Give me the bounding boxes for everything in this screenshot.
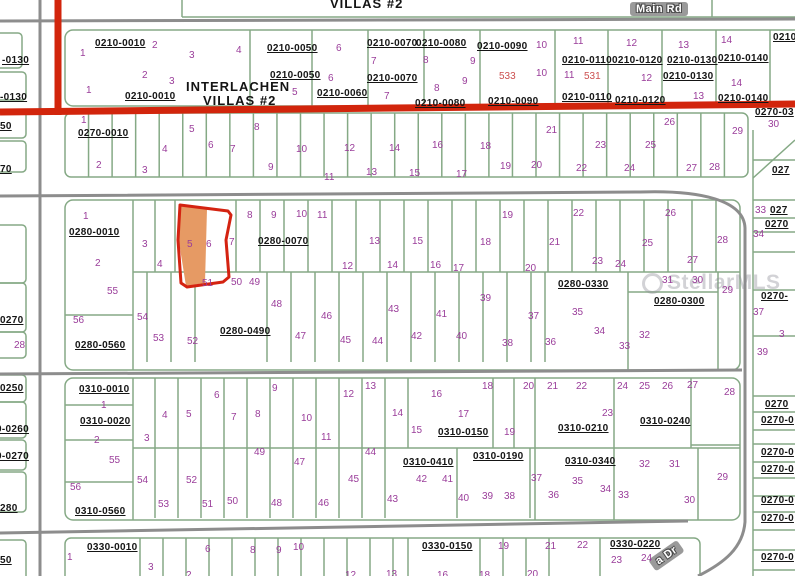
lot-number: 11 xyxy=(564,71,574,81)
subdivision-title-top: VILLAS #2 xyxy=(330,0,403,10)
lot-number: 1 xyxy=(101,401,107,411)
lot-number: 2 xyxy=(95,259,101,269)
lot-number: 4 xyxy=(162,145,168,155)
lot-number: 8 xyxy=(250,546,256,556)
lot-number: 10 xyxy=(301,414,312,424)
parcel-id-fragment: 0-0260 xyxy=(0,425,29,435)
lot-number: 34 xyxy=(594,327,605,337)
parcel-id-label: 0310-0340 xyxy=(565,457,616,467)
lot-number: 27 xyxy=(687,381,698,391)
lot-number: 32 xyxy=(639,460,650,470)
lot-number: 3 xyxy=(148,563,154,573)
lot-number: 39 xyxy=(480,294,491,304)
lot-number: 27 xyxy=(686,164,697,174)
lot-number: 55 xyxy=(109,456,120,466)
lot-number: 52 xyxy=(187,337,198,347)
lot-number: 11 xyxy=(317,211,327,221)
lot-number: 2 xyxy=(96,161,102,171)
lot-number: 5 xyxy=(189,125,195,135)
parcel-id-fragment: 027 xyxy=(770,206,788,216)
parcel-id-label: 0210-0070 xyxy=(367,39,418,49)
lot-number: 5 xyxy=(186,410,192,420)
lot-number: 28 xyxy=(717,236,728,246)
lot-number: 10 xyxy=(536,69,547,79)
lot-number: 30 xyxy=(768,120,779,130)
parcel-id-label: 0210-0120 xyxy=(612,56,663,66)
parcel-id-label: 0310-0010 xyxy=(79,385,130,395)
lot-number: 10 xyxy=(296,145,307,155)
lot-number: 1 xyxy=(81,116,87,126)
parcel-id-label: 0330-0010 xyxy=(87,543,138,553)
parcel-id-label: 0210-0060 xyxy=(317,89,368,99)
parcel-id-fragment: -0130 xyxy=(0,93,27,103)
lot-number: 8 xyxy=(423,56,429,66)
lot-number: 6 xyxy=(205,545,211,555)
parcel-id-label: 0310-0240 xyxy=(640,417,691,427)
lot-number: 40 xyxy=(458,494,469,504)
lot-number: 22 xyxy=(576,164,587,174)
lot-number: 40 xyxy=(456,332,467,342)
lot-number: 35 xyxy=(572,477,583,487)
lot-number: 36 xyxy=(545,338,556,348)
lot-number: 31 xyxy=(662,276,673,286)
lot-number: 23 xyxy=(602,409,613,419)
lot-number: 7 xyxy=(384,92,390,102)
lot-number: 9 xyxy=(276,546,282,556)
lot-number: 13 xyxy=(386,570,397,576)
lot-number: 22 xyxy=(573,209,584,219)
lot-number: 41 xyxy=(436,310,447,320)
highlighted-parcel-fill[interactable] xyxy=(179,206,207,286)
lot-number: 50 xyxy=(231,278,242,288)
parcel-id-fragment: 0270-0 xyxy=(761,416,794,426)
lot-number: 17 xyxy=(458,410,469,420)
lot-number: 13 xyxy=(366,168,377,178)
lot-number: 15 xyxy=(412,237,423,247)
parcel-id-label: 0210-0090 xyxy=(477,42,528,52)
lot-number: 4 xyxy=(162,411,168,421)
parcel-id-label: 0210-0130 xyxy=(663,72,714,82)
lot-number: 2 xyxy=(94,436,100,446)
parcel-id-label: 0310-0020 xyxy=(80,417,131,427)
parcel-id-label: 0210-0080 xyxy=(415,99,466,109)
parcel-id-fragment: 0270- xyxy=(761,292,788,302)
parcel-id-fragment: 50 xyxy=(0,556,12,566)
lot-number: 35 xyxy=(572,308,583,318)
parcel-id-fragment: 280 xyxy=(0,504,18,514)
lot-number: 1 xyxy=(67,553,73,563)
parcel-id-label: 0210-0140 xyxy=(718,54,769,64)
lot-number: 56 xyxy=(73,316,84,326)
lot-number: 21 xyxy=(546,126,557,136)
lot-number: 26 xyxy=(665,209,676,219)
lot-number: 28 xyxy=(709,163,720,173)
parcel-id-label: 0310-0560 xyxy=(75,507,126,517)
plat-map: VILLAS #2 INTERLACHEN VILLAS #2 Main Rd … xyxy=(0,0,795,576)
red-lot-number: 531 xyxy=(584,72,601,82)
lot-number: 8 xyxy=(247,211,253,221)
lot-number: 1 xyxy=(83,212,89,222)
lot-number: 33 xyxy=(618,491,629,501)
parcel-id-fragment: 70 xyxy=(0,165,12,175)
lot-number: 33 xyxy=(755,206,766,216)
lot-number: 16 xyxy=(431,390,442,400)
lot-number: 12 xyxy=(345,571,356,576)
parcel-id-fragment: 0250 xyxy=(0,384,23,394)
lot-number: 34 xyxy=(600,485,611,495)
lot-number: 42 xyxy=(411,332,422,342)
parcel-id-fragment: 0210 xyxy=(773,33,795,43)
lot-number: 3 xyxy=(142,166,148,176)
lot-number: 2 xyxy=(142,71,148,81)
lot-number: 24 xyxy=(624,164,635,174)
lot-number: 7 xyxy=(230,145,236,155)
lot-number: 20 xyxy=(523,382,534,392)
lot-number: 38 xyxy=(502,339,513,349)
parcel-id-label: 0210-0070 xyxy=(367,74,418,84)
parcel-id-fragment: 0270-0 xyxy=(761,553,794,563)
parcel-id-label: 0310-0190 xyxy=(473,452,524,462)
lot-number: 9 xyxy=(271,211,277,221)
parcel-id-fragment: 0270-03 xyxy=(755,108,794,118)
lot-number: 8 xyxy=(255,410,261,420)
parcel-id-fragment: 027 xyxy=(772,166,790,176)
lot-number: 10 xyxy=(296,210,307,220)
lot-number: 45 xyxy=(348,475,359,485)
lot-number: 11 xyxy=(321,433,331,443)
lot-number: 37 xyxy=(528,312,539,322)
lot-number: 11 xyxy=(573,37,583,47)
lot-number: 11 xyxy=(324,173,334,183)
lot-number: 27 xyxy=(687,256,698,266)
map-canvas xyxy=(0,0,795,576)
lot-number: 22 xyxy=(577,541,588,551)
lot-number: 25 xyxy=(642,239,653,249)
lot-number: 20 xyxy=(525,264,536,274)
lot-number: 54 xyxy=(137,476,148,486)
lot-number: 37 xyxy=(753,308,764,318)
lot-number: 6 xyxy=(208,141,214,151)
lot-number: 47 xyxy=(294,458,305,468)
lot-number: 7 xyxy=(371,57,377,67)
lot-number: 49 xyxy=(249,278,260,288)
lot-number: 16 xyxy=(432,141,443,151)
lot-number: 31 xyxy=(669,460,680,470)
lot-number: 3 xyxy=(169,77,175,87)
lot-number: 9 xyxy=(272,384,278,394)
parcel-id-label: 0210-0110 xyxy=(562,93,612,103)
lot-number: 4 xyxy=(157,260,163,270)
lot-number: 3 xyxy=(144,434,150,444)
lot-number: 9 xyxy=(462,77,468,87)
lot-number: 14 xyxy=(387,261,398,271)
lot-number: 4 xyxy=(236,46,242,56)
lot-number: 53 xyxy=(153,334,164,344)
lot-number: 14 xyxy=(389,144,400,154)
lot-number: 12 xyxy=(641,74,652,84)
lot-number: 29 xyxy=(722,286,733,296)
lot-number: 51 xyxy=(202,279,213,289)
subdivision-name-line1: INTERLACHEN xyxy=(186,80,290,93)
lot-number: 1 xyxy=(86,86,92,96)
main-rd-road-label: Main Rd xyxy=(630,2,688,16)
parcel-id-label: 0210-0050 xyxy=(267,44,318,54)
lot-number: 10 xyxy=(293,543,304,553)
parcel-id-label: 0210-0140 xyxy=(718,94,769,104)
parcel-id-label: 0280-0560 xyxy=(75,341,126,351)
lot-number: 43 xyxy=(387,495,398,505)
lot-number: 9 xyxy=(268,163,274,173)
lot-number: 39 xyxy=(757,348,768,358)
lot-number: 20 xyxy=(531,161,542,171)
lot-number: 21 xyxy=(549,238,560,248)
lot-number: 8 xyxy=(434,84,440,94)
lot-number: 21 xyxy=(547,382,558,392)
lot-number: 19 xyxy=(498,542,509,552)
parcel-id-label: 0310-0150 xyxy=(438,428,489,438)
parcel-id-label: 0330-0150 xyxy=(422,542,473,552)
lot-number: 38 xyxy=(504,492,515,502)
red-lot-number: 533 xyxy=(499,72,516,82)
lot-number: 7 xyxy=(231,413,237,423)
lot-number: 19 xyxy=(502,211,513,221)
lot-number: 48 xyxy=(271,300,282,310)
parcel-id-fragment: 0270 xyxy=(765,220,788,230)
parcel-id-label: 0210-0120 xyxy=(615,96,666,106)
lot-number: 15 xyxy=(411,426,422,436)
lot-number: 52 xyxy=(186,476,197,486)
lot-number: 37 xyxy=(531,474,542,484)
lot-number: 12 xyxy=(626,39,637,49)
lot-number: 9 xyxy=(470,57,476,67)
lot-number: 26 xyxy=(664,118,675,128)
lot-number: 19 xyxy=(500,162,511,172)
gray-roads xyxy=(0,0,795,576)
parcel-id-label: 0210-0010 xyxy=(125,92,176,102)
lot-number: 39 xyxy=(482,492,493,502)
lot-number: 6 xyxy=(206,240,212,250)
lot-number: 13 xyxy=(369,237,380,247)
parcel-id-fragment: 0270-0 xyxy=(761,465,794,475)
lot-number: 18 xyxy=(480,142,491,152)
lot-number: 12 xyxy=(344,144,355,154)
lot-number: 12 xyxy=(342,262,353,272)
lot-number: 53 xyxy=(158,500,169,510)
lot-number: 16 xyxy=(430,261,441,271)
parcel-id-fragment: 0270 xyxy=(0,316,23,326)
lot-number: 24 xyxy=(617,382,628,392)
lot-number: 13 xyxy=(678,41,689,51)
parcel-id-label: 0280-0070 xyxy=(258,237,309,247)
parcel-id-label: 0210-0010 xyxy=(95,39,146,49)
lot-number: 14 xyxy=(392,409,403,419)
lot-number: 3 xyxy=(189,51,195,61)
parcel-id-label: 0270-0010 xyxy=(78,129,129,139)
parcel-id-label: 0280-0490 xyxy=(220,327,271,337)
parcel-id-label: 0310-0210 xyxy=(558,424,609,434)
subdivision-name-line2: VILLAS #2 xyxy=(203,94,276,107)
lot-number: 6 xyxy=(328,74,334,84)
parcel-id-fragment: 50 xyxy=(0,122,12,132)
lot-number: 49 xyxy=(254,448,265,458)
lot-number: 14 xyxy=(721,36,732,46)
lot-number: 5 xyxy=(187,240,193,250)
lot-number: 29 xyxy=(717,473,728,483)
lot-number: 5 xyxy=(292,88,298,98)
lot-number: 15 xyxy=(409,169,420,179)
parcel-id-label: 0280-0010 xyxy=(69,228,120,238)
lot-number: 3 xyxy=(779,330,785,340)
lot-number: 17 xyxy=(456,170,467,180)
lot-number: 2 xyxy=(152,41,158,51)
lot-number: 28 xyxy=(14,341,25,351)
lot-number: 1 xyxy=(80,49,86,59)
lot-number: 55 xyxy=(107,287,118,297)
parcel-id-label: 0310-0410 xyxy=(403,458,454,468)
parcel-id-fragment: 0-0270 xyxy=(0,452,29,462)
lot-number: 23 xyxy=(592,257,603,267)
lot-number: 42 xyxy=(416,475,427,485)
parcel-id-fragment: 0270-0 xyxy=(761,514,794,524)
lot-number: 30 xyxy=(684,496,695,506)
lot-number: 13 xyxy=(365,382,376,392)
lot-number: 16 xyxy=(437,571,448,576)
lot-number: 43 xyxy=(388,305,399,315)
lot-number: 47 xyxy=(295,332,306,342)
parcel-id-label: 0210-0050 xyxy=(270,71,321,81)
lot-number: 24 xyxy=(641,554,652,564)
parcel-id-label: 0210-0090 xyxy=(488,97,539,107)
lot-number: 30 xyxy=(692,276,703,286)
lot-number: 17 xyxy=(453,264,464,274)
lot-number: 19 xyxy=(504,428,515,438)
lot-number: 45 xyxy=(340,336,351,346)
lot-number: 48 xyxy=(271,499,282,509)
lot-number: 26 xyxy=(662,382,673,392)
lot-number: 54 xyxy=(137,313,148,323)
lot-number: 18 xyxy=(479,571,490,576)
parcel-boundaries xyxy=(0,0,795,576)
lot-number: 46 xyxy=(318,499,329,509)
lot-number: 22 xyxy=(576,382,587,392)
parcel-id-fragment: 0270-0 xyxy=(761,496,794,506)
lot-number: 14 xyxy=(731,79,742,89)
parcel-id-fragment: 0270-0 xyxy=(761,448,794,458)
lot-number: 28 xyxy=(724,388,735,398)
lot-number: 44 xyxy=(372,337,383,347)
parcel-id-label: 0280-0330 xyxy=(558,280,609,290)
parcel-id-label: 0280-0300 xyxy=(654,297,705,307)
lot-number: 51 xyxy=(202,500,213,510)
lot-number: 25 xyxy=(645,141,656,151)
lot-number: 41 xyxy=(442,475,453,485)
lot-number: 18 xyxy=(480,238,491,248)
lot-number: 32 xyxy=(639,331,650,341)
lot-number: 20 xyxy=(527,570,538,576)
lot-number: 18 xyxy=(482,382,493,392)
parcel-id-label: 0210-0110 xyxy=(562,56,612,66)
lot-number: 29 xyxy=(732,127,743,137)
parcel-id-fragment: 0270 xyxy=(765,400,788,410)
lot-number: 13 xyxy=(693,92,704,102)
lot-number: 46 xyxy=(321,312,332,322)
lot-number: 56 xyxy=(70,483,81,493)
lot-number: 24 xyxy=(615,260,626,270)
parcel-id-fragment: -0130 xyxy=(2,56,29,66)
lot-number: 10 xyxy=(536,41,547,51)
lot-number: 36 xyxy=(548,491,559,501)
lot-number: 7 xyxy=(229,238,235,248)
lot-number: 2 xyxy=(186,571,192,576)
lot-number: 6 xyxy=(214,391,220,401)
lot-number: 23 xyxy=(611,556,622,566)
lot-number: 25 xyxy=(639,382,650,392)
parcel-id-label: 0330-0220 xyxy=(610,540,661,550)
lot-number: 3 xyxy=(142,240,148,250)
lot-number: 8 xyxy=(254,123,260,133)
parcel-id-label: 0210-0130 xyxy=(667,56,718,66)
lot-number: 12 xyxy=(343,390,354,400)
lot-number: 33 xyxy=(619,342,630,352)
lot-number: 44 xyxy=(365,448,376,458)
lot-number: 23 xyxy=(595,141,606,151)
lot-number: 34 xyxy=(753,230,764,240)
lot-number: 21 xyxy=(545,542,556,552)
highlighted-parcel[interactable] xyxy=(178,205,231,287)
lot-number: 6 xyxy=(336,44,342,54)
parcel-id-label: 0210-0080 xyxy=(416,39,467,49)
lot-number: 50 xyxy=(227,497,238,507)
